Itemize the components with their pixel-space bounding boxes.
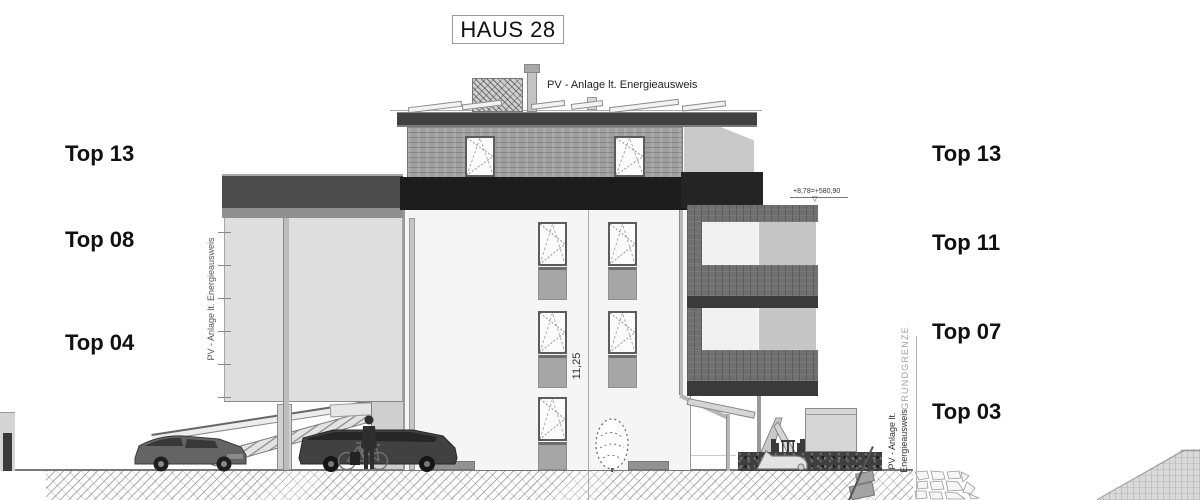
window xyxy=(538,397,567,441)
unit-label-right-top03: Top 03 xyxy=(932,399,1001,425)
balcony-band xyxy=(687,205,818,222)
right-pv-note-line1: PV - Anlage lt. xyxy=(887,412,897,469)
attic-window xyxy=(465,136,495,177)
unit-label-left-top04: Top 04 xyxy=(65,330,134,356)
wing-parapet-strip xyxy=(222,208,403,218)
balcony-slab xyxy=(687,296,818,308)
embankment-top-line xyxy=(1181,450,1200,451)
window-spandrel xyxy=(538,267,567,300)
wing-parapet-band xyxy=(222,174,403,208)
unit-label-right-top13: Top 13 xyxy=(932,141,1001,167)
balcony-parapet-top xyxy=(681,172,763,208)
height-dimension: 11,25 xyxy=(571,353,583,380)
balcony-opening-near xyxy=(702,222,758,265)
rear-wing-wedge xyxy=(684,127,754,178)
left-wall-pv-note: PV - Anlage lt. Energieausweis xyxy=(206,237,216,360)
door-step xyxy=(628,461,669,470)
elevation-mark: +8,78=+580,90 xyxy=(793,188,840,195)
neighbor-structure-opening xyxy=(3,433,12,471)
wing-downspout xyxy=(283,218,289,470)
unit-label-left-top08: Top 08 xyxy=(65,227,134,253)
roof-pv-note: PV - Anlage lt. Energieausweis xyxy=(547,79,697,91)
window-spandrel xyxy=(608,267,637,300)
title-box: HAUS 28 xyxy=(452,15,564,44)
car-silhouette xyxy=(131,428,249,472)
balcony-opening-far xyxy=(759,308,816,350)
balcony-slab xyxy=(687,381,818,396)
stone-wall xyxy=(913,470,998,500)
elevation-marker-icon: ▽ xyxy=(812,196,817,204)
right-pv-note-line2: Energieausweis xyxy=(899,409,909,473)
window-spandrel xyxy=(538,442,567,470)
downspout-lower xyxy=(726,414,730,471)
window xyxy=(538,222,567,266)
boundary-line xyxy=(916,336,917,500)
attic-window xyxy=(614,136,645,177)
neighbor-structure xyxy=(0,412,15,471)
page-title: HAUS 28 xyxy=(460,17,555,43)
embankment xyxy=(1097,449,1200,500)
bush xyxy=(593,416,631,472)
garden-shed xyxy=(805,408,857,452)
balcony-stack xyxy=(687,205,818,396)
window xyxy=(608,222,637,266)
balcony-downspout xyxy=(679,210,683,395)
wing-pv-ticks xyxy=(218,228,231,398)
window-spandrel xyxy=(608,355,637,388)
unit-label-left-top13: Top 13 xyxy=(65,141,134,167)
unit-label-right-top07: Top 07 xyxy=(932,319,1001,345)
ground-hatch xyxy=(46,471,913,500)
roof-slab xyxy=(397,112,757,127)
roof-top-line xyxy=(390,110,762,111)
window-spandrel xyxy=(538,355,567,388)
parapet-band-dark xyxy=(400,177,691,210)
balcony-opening-near xyxy=(702,308,758,350)
wing-wall xyxy=(224,218,403,402)
window xyxy=(608,311,637,354)
unit-label-right-top11: Top 11 xyxy=(932,230,1000,256)
dimension-line xyxy=(588,210,589,500)
table-and-chairs xyxy=(770,427,806,453)
elevation-mark-underline xyxy=(790,197,848,198)
boundary-label: GRUNDGRENZE xyxy=(900,326,910,410)
shed-roof-line xyxy=(806,414,856,415)
balcony-opening-far xyxy=(759,222,816,265)
balcony-band xyxy=(687,265,818,296)
window xyxy=(538,311,567,354)
elevation-drawing-canvas: HAUS 28 PV - Anlage lt. Energieausweis T… xyxy=(0,0,1200,500)
balcony-band xyxy=(687,350,818,381)
person-silhouette xyxy=(349,415,387,471)
